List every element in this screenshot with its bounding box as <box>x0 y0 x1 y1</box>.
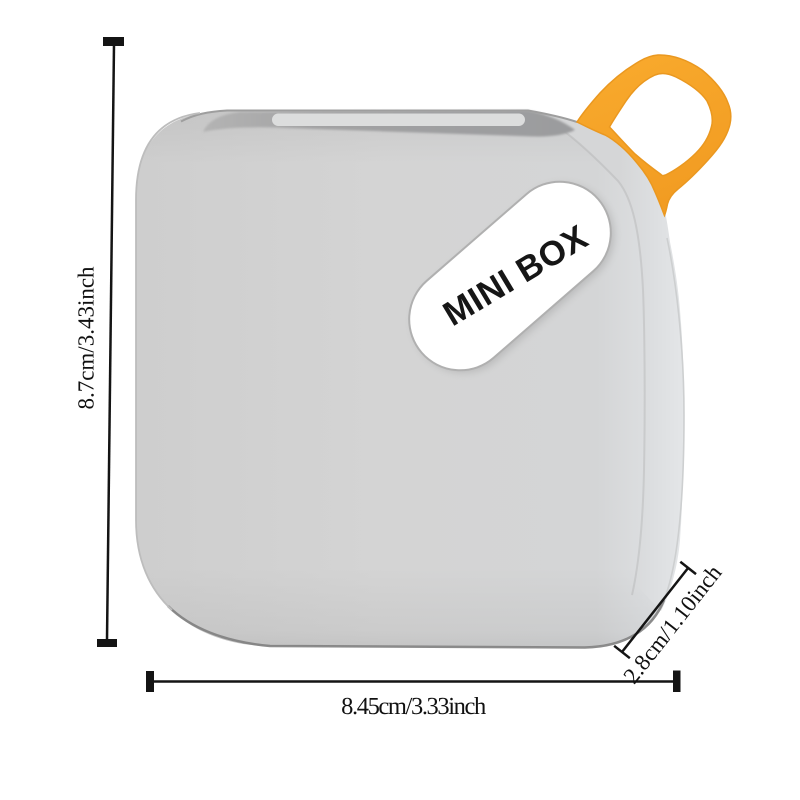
svg-text:8.7cm/3.43inch: 8.7cm/3.43inch <box>74 266 99 410</box>
svg-text:8.45cm/3.33inch: 8.45cm/3.33inch <box>341 693 486 720</box>
